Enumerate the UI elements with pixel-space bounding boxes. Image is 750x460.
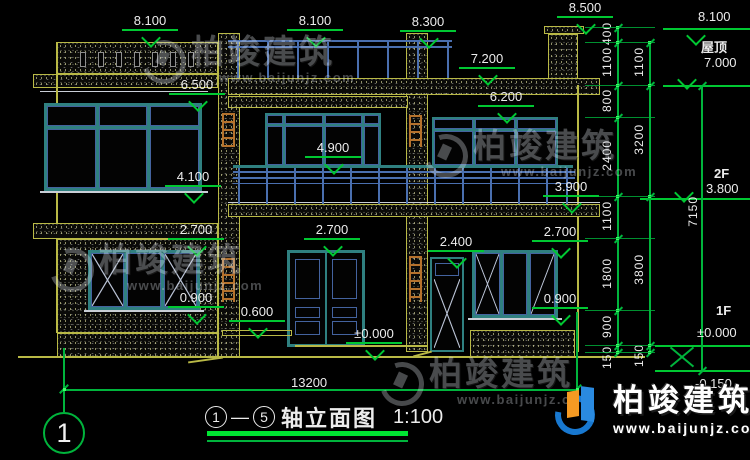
- parapet-vent-slot: [170, 52, 176, 67]
- axis-end-bubble: 5: [253, 406, 275, 428]
- level-triangle-icon: [551, 306, 571, 326]
- level-marker: 2.400: [428, 235, 484, 252]
- balcony-rail-post: [434, 168, 436, 204]
- level-marker: 2.700: [304, 223, 360, 240]
- level-marker: 8.100: [122, 14, 178, 31]
- level-marker: 8.500: [557, 1, 613, 18]
- level-value: 0.900: [532, 292, 588, 306]
- level-marker: 6.500: [169, 78, 225, 95]
- level-value: 2.700: [304, 223, 360, 237]
- dimension-value: 150: [632, 344, 646, 367]
- level-value: 0.900: [168, 291, 224, 305]
- right-level-name: 屋顶: [701, 37, 727, 56]
- level-triangle-icon: [497, 104, 517, 124]
- parapet-vent-slot: [98, 52, 104, 67]
- balcony-rail-post: [294, 168, 296, 204]
- extension-line: [585, 238, 655, 239]
- brand-logo-icon: [553, 383, 605, 447]
- parapet-vent-slot: [188, 52, 194, 67]
- balcony-rail-post: [238, 168, 240, 204]
- overall-height-value: 7150: [686, 196, 700, 227]
- dimension-value: 3800: [632, 254, 646, 285]
- level-marker: 4.900: [305, 141, 361, 158]
- level-marker: ±0.000: [346, 327, 402, 344]
- level-marker: 2.700: [532, 225, 588, 242]
- parapet-vent-slot: [134, 52, 140, 67]
- dimension-value: 800: [600, 89, 614, 112]
- title-scale: 1:100: [393, 406, 443, 429]
- extension-line: [585, 27, 655, 28]
- brand-name: 柏竣建筑: [613, 383, 750, 419]
- level-value: 4.900: [305, 141, 361, 155]
- wall-ladder-decor-icon: [222, 113, 235, 147]
- right-level-name: 1F: [716, 303, 731, 318]
- dimension-value: 150: [600, 346, 614, 369]
- dimension-value: 3200: [632, 124, 646, 155]
- level-marker: 0.900: [532, 292, 588, 309]
- roof-rail-post: [357, 40, 359, 78]
- level-triangle-icon: [141, 28, 161, 48]
- right-level-line: [663, 28, 750, 30]
- balcony-rail-post: [518, 168, 520, 204]
- parapet-vent-slot: [80, 52, 86, 67]
- axis-bubble-label: 1: [56, 418, 71, 449]
- overall-width-value: 13200: [291, 375, 327, 390]
- level-triangle-icon: [187, 305, 207, 325]
- balcony-rail-post: [378, 168, 380, 204]
- dimension-chain-line: [617, 27, 619, 352]
- level-value: ±0.000: [346, 327, 402, 341]
- cad-elevation-drawing: 柏竣建筑 www.baijunjz.com 柏竣建筑 www.baijunjz.…: [0, 0, 750, 460]
- level-marker: 8.100: [287, 14, 343, 31]
- level-triangle-icon: [419, 29, 439, 49]
- level-marker: 7.200: [459, 52, 515, 69]
- dimension-tick-dot: [63, 388, 66, 391]
- roof-rail-post: [387, 40, 389, 78]
- title-underline-thick: [207, 431, 408, 436]
- level-triangle-icon: [447, 249, 467, 269]
- dimension-value: 1100: [632, 47, 646, 77]
- level-marker: 3.900: [543, 180, 599, 197]
- dimension-value: 900: [600, 315, 614, 338]
- level-triangle-icon: [551, 239, 571, 259]
- axis-range-dash: —: [231, 407, 249, 428]
- parapet-vent-slot: [116, 52, 122, 67]
- level-triangle-icon: [184, 184, 204, 204]
- roof-rail-post: [417, 40, 419, 78]
- wall-ladder-decor-icon: [409, 256, 422, 302]
- right-level-value: 8.100: [698, 9, 731, 24]
- level-value: 8.100: [122, 14, 178, 28]
- balcony-rail-post: [322, 168, 324, 204]
- level-value: 6.200: [478, 90, 534, 104]
- extension-line: [585, 42, 655, 43]
- roof-rail-post: [297, 40, 299, 78]
- level-triangle-icon: [323, 237, 343, 257]
- dimension-value: 1100: [600, 201, 614, 231]
- level-value: 2.700: [532, 225, 588, 239]
- level-value: 0.600: [229, 305, 285, 319]
- dimension-value: 1100: [600, 47, 614, 77]
- level-value: 8.100: [287, 14, 343, 28]
- dimension-value: 2400: [600, 140, 614, 171]
- level-value: 8.300: [400, 15, 456, 29]
- extension-line: [585, 310, 655, 311]
- balcony-rail-post: [490, 168, 492, 204]
- balcony-rail-post: [350, 168, 352, 204]
- level-triangle-icon: [187, 237, 207, 257]
- level-triangle-icon: [576, 15, 596, 35]
- level-value: 6.500: [169, 78, 225, 92]
- dimension-value: 1800: [600, 258, 614, 289]
- right-level-line: [663, 85, 750, 87]
- right-level-value: 7.000: [704, 55, 737, 70]
- level-triangle-icon: [365, 341, 385, 361]
- title-underline-thin: [207, 440, 408, 442]
- balcony-rail-post: [406, 168, 408, 204]
- extension-line: [63, 348, 65, 412]
- extension-line: [585, 352, 655, 353]
- roof-rail-post: [327, 40, 329, 78]
- level-triangle-icon: [248, 319, 268, 339]
- balcony-rail-post: [462, 168, 464, 204]
- brand-url: www.baijunjz.com: [613, 420, 750, 436]
- level-value: 4.100: [165, 170, 221, 184]
- axis-bubble-1: 1: [43, 412, 85, 454]
- right-level-name: 2F: [714, 166, 729, 181]
- right-level-value: 3.800: [706, 181, 739, 196]
- balcony-rail-post: [266, 168, 268, 204]
- extension-line: [585, 345, 655, 346]
- level-triangle-icon: [306, 28, 326, 48]
- level-marker: 2.700: [168, 223, 224, 240]
- drawing-title: 1 — 5 轴立面图 1:100: [205, 401, 443, 433]
- level-value: 3.900: [543, 180, 599, 194]
- extension-line: [585, 85, 655, 86]
- level-value: 8.500: [557, 1, 613, 15]
- right-level-value: ±0.000: [697, 325, 737, 340]
- wall-ladder-decor-icon: [409, 115, 422, 147]
- level-triangle-icon: [478, 66, 498, 86]
- extension-line: [585, 117, 655, 118]
- roof-rail-post: [237, 40, 239, 78]
- roof-rail-post: [447, 40, 449, 78]
- roof-rail-post: [267, 40, 269, 78]
- parapet-vent-slot: [152, 52, 158, 67]
- level-triangle-icon: [188, 92, 208, 112]
- level-value: 7.200: [459, 52, 515, 66]
- level-marker: 0.900: [168, 291, 224, 308]
- level-marker: 6.200: [478, 90, 534, 107]
- level-marker: 0.600: [229, 305, 285, 322]
- level-value: 2.400: [428, 235, 484, 249]
- brand-footer: 柏竣建筑 www.baijunjz.com: [553, 383, 750, 447]
- axis-start-bubble: 1: [205, 406, 227, 428]
- level-value: 2.700: [168, 223, 224, 237]
- title-text: 轴立面图: [281, 401, 377, 433]
- level-triangle-icon: [324, 155, 344, 175]
- level-marker: 8.300: [400, 15, 456, 32]
- level-marker: 4.100: [165, 170, 221, 187]
